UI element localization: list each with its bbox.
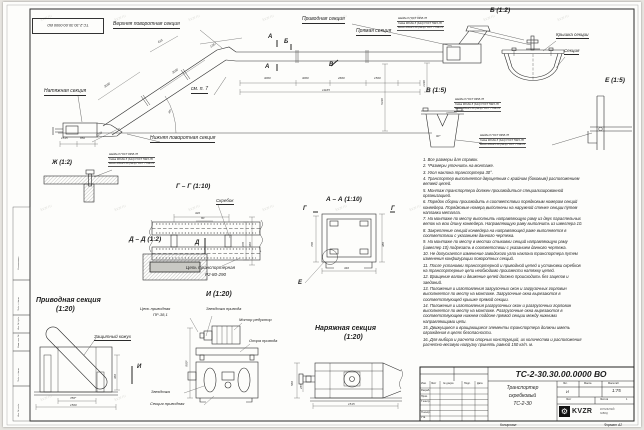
dim-1515-tension: 1515 xyxy=(348,403,355,406)
margin-label-inv-podl: Инв. № подл. xyxy=(18,403,20,417)
view-title-v: В (1:5) xyxy=(426,88,446,95)
dim-1430: 1430 xyxy=(423,80,426,87)
note-item: 14. Положения и изготовления разгрузочны… xyxy=(423,303,583,324)
label-conveyor-chain-1: Цепь транспортерная xyxy=(186,266,235,271)
row-utv: Утв. xyxy=(421,417,426,420)
marker-v: В xyxy=(329,62,333,68)
fastener-callout-b: Шайба 8 ГОСТ 6958-78 Гайка М8-6Н.5 (S13)… xyxy=(397,18,444,32)
note-item: 8. Закрепление секций конвейера на напра… xyxy=(423,228,583,239)
label-protective-cover: Защитный кожух xyxy=(94,335,131,341)
label-tension-section: Натяжная секция xyxy=(44,89,86,96)
view-title-zh: Ж (1:2) xyxy=(52,160,72,166)
view-title-i: И (1:20) xyxy=(206,291,232,298)
kvzr-logo-icon: ⚙ xyxy=(559,406,570,417)
note-item: 7. На монтаже по месту выполнить направл… xyxy=(423,216,583,227)
kvzr-logo-text: KVZR xyxy=(572,408,592,415)
note-item: 1. Все размеры для справок. xyxy=(423,157,583,162)
label-drive-sprocket: Звездочка привода xyxy=(206,307,241,311)
label-upper-turn-section: Верхняя поворотная секция xyxy=(113,22,180,29)
dim-255: 255 xyxy=(300,384,303,389)
col-podp: Подп. xyxy=(464,383,471,386)
detail-b-lines xyxy=(502,36,565,81)
sheet-label: Лист xyxy=(566,399,571,402)
margin-label-inv-dubl: Инв. № дубл. xyxy=(18,317,20,330)
dim-780: 780* xyxy=(70,397,76,400)
note-item: 15. Движущиеся и вращающиеся элементы тр… xyxy=(423,325,583,336)
row-prov: Пров. xyxy=(421,396,428,399)
dim-total-11165: 11165 xyxy=(322,89,330,92)
note-item: 2. *Размеры уточнить на монтаже. xyxy=(423,163,583,168)
label-sprocket: Звездочка xyxy=(151,390,170,394)
dim-340: 340 xyxy=(344,267,349,270)
dim-360: 360 xyxy=(114,374,117,379)
label-drive-support: Опора привода xyxy=(249,339,277,343)
dim-850: 850 xyxy=(80,137,85,140)
label-straight-section: Прямая секция xyxy=(356,29,391,36)
title-block-name-3: ТС-2-30 xyxy=(488,402,557,407)
view-title-drive: Приводная секция xyxy=(36,297,101,304)
row-tkontr: Т.контр. xyxy=(421,401,430,404)
scale-label: Масштаб xyxy=(608,383,619,386)
marker-g-right: Г xyxy=(391,206,395,212)
row-nkontr: Н.контр. xyxy=(421,412,431,415)
note-item: 16. Для выбора и расчета опорных констру… xyxy=(423,337,583,348)
margin-label-podp-data-2: Подп. и дата xyxy=(18,368,20,382)
footer-format: Формат А2 xyxy=(604,424,622,427)
footer-copied: Копировал xyxy=(500,424,516,427)
detail-e-lines xyxy=(588,96,632,150)
i-view-lines xyxy=(184,316,258,405)
label-conveyor-chain-2: Р2-80-290 xyxy=(205,273,226,278)
note-item: 9. На монтаже по месту в местах стыковки… xyxy=(423,239,583,250)
title-block-name-2: скребковый xyxy=(488,394,557,399)
col-list: Лист xyxy=(431,383,436,386)
dim-1515-main: 1515 xyxy=(61,137,68,140)
top-left-stamp: ТС-2-30.30.00.0000 ВО xyxy=(32,18,104,34)
fastener-callout-v1: Шайба 8 ГОСТ 6958-78Гайка М8-6Н.5 (S13) … xyxy=(454,99,501,113)
dim-460: 460 xyxy=(249,242,252,247)
col-izm: Изм. xyxy=(421,383,426,386)
label-drive-section-part: Секция приводная xyxy=(150,402,184,406)
dim-320: 320 xyxy=(195,212,200,215)
label-scraper: Скребок xyxy=(216,199,234,205)
label-drive-chain-1: Цепь приводная xyxy=(140,307,170,311)
marker-g-left: Г xyxy=(303,206,307,212)
label-drive-section: Приводная секция xyxy=(302,17,345,24)
marker-b: Б xyxy=(284,39,288,45)
marker-a-top: А xyxy=(268,34,272,40)
margin-label-soglasovano: Согласовано xyxy=(18,257,20,270)
label-cover: Крышка секции xyxy=(556,33,589,39)
note-item: 12. Вращение валов и движение цепей долж… xyxy=(423,274,583,285)
dim-800: 800* xyxy=(186,360,189,366)
note-item: 13. Положения и изготовления загрузочных… xyxy=(423,286,583,302)
dim-5430: 5430 xyxy=(381,98,384,105)
detail-zh-lines xyxy=(44,170,118,202)
logo-subtext-2: ЗАВОД xyxy=(600,413,608,415)
lit-value: И xyxy=(566,390,569,394)
sheets-value: 1 xyxy=(626,399,627,402)
dim-2660: 2660 xyxy=(338,77,345,80)
technical-notes: 1. Все размеры для справок.2. *Размеры у… xyxy=(423,157,583,348)
main-view-dims xyxy=(60,36,430,147)
callout-line-bolt: Болт М8х25.58 (S13) ГОСТ 7796-70 xyxy=(397,27,444,31)
view-title-aa: А – А (1:10) xyxy=(326,197,362,204)
note-item: 5. Монтаж транспортера должен производит… xyxy=(423,188,583,199)
marker-e: Е xyxy=(298,280,302,286)
view-title-tension: Наряжная секция xyxy=(315,325,376,332)
dim-3000-run2: 3000 xyxy=(302,77,309,80)
row-razrab: Разраб. xyxy=(421,390,430,393)
label-motor-reducer: Мотор редуктор xyxy=(239,318,272,322)
view-scale-tension: (1:20) xyxy=(344,334,363,341)
scale-value: 1:75 xyxy=(612,389,621,394)
dim-700: 700 xyxy=(311,242,314,247)
marker-d: Д xyxy=(195,240,199,246)
detail-aa-lines xyxy=(305,212,395,283)
note-item: 4. Транспортер выполняется двухцепным с … xyxy=(423,176,583,187)
note-item: 3. Угол наклона транспортера 30°. xyxy=(423,170,583,175)
view-title-b: Б (1:2) xyxy=(490,8,510,15)
title-block-doc-number: ТС-2-30.30.00.0000 ВО xyxy=(488,370,634,379)
mass-label: Масса xyxy=(584,383,591,386)
view-title-dd: Д – Д (1:2) xyxy=(129,237,161,244)
marker-a-bottom: А xyxy=(265,64,269,70)
label-see-note: см. п. 7 xyxy=(191,87,208,94)
label-section: Секция xyxy=(564,49,579,55)
title-block-name-1: Транспортер xyxy=(488,386,557,391)
dim-1500: 1500 xyxy=(374,77,381,80)
drawing-sheet-page: kvzr.rukvzr.rukvzr.rukvzr.rukvzr.rukvzr.… xyxy=(0,0,644,430)
dim-90deg: 90° xyxy=(436,135,441,138)
lit-label: Лит. xyxy=(563,383,568,386)
marker-i: И xyxy=(137,364,141,370)
fastener-callout-v2: Шайба 8 ГОСТ 6958-78Гайка М8-6Н.5 (S13) … xyxy=(479,135,526,149)
label-lower-turn-section: Нижняя поворотная секция xyxy=(150,136,215,143)
dim-3000-run1: 3000 xyxy=(264,77,271,80)
margin-label-podp-data-1: Подп. и дата xyxy=(18,297,20,311)
dim-380: 380 xyxy=(382,242,385,247)
view-title-gg: Г – Г (1:10) xyxy=(176,184,210,191)
view-title-e: Е (1:5) xyxy=(605,78,625,85)
note-item: 11. После установки транспортерной и при… xyxy=(423,263,583,274)
note-item: 6. Порядок сборки производить в соответс… xyxy=(423,199,583,215)
dim-370: 370 xyxy=(242,242,245,247)
col-doc: № докум. xyxy=(443,383,454,386)
dim-80: 80 xyxy=(201,217,204,220)
logo-subtext-1: КОТЕЛЬНЫЙ xyxy=(600,409,614,411)
dim-1500-drive: 1500 xyxy=(70,404,77,407)
col-data: Дата xyxy=(477,383,483,386)
fastener-callout-zh: Шайба 8 ГОСТ 6958-78Гайка М8-6Н.5 (S13) … xyxy=(108,154,155,168)
dim-560: 560 xyxy=(291,381,294,386)
margin-label-vzam-inv: Взам. инв. № xyxy=(18,334,20,348)
sheets-label: Листов xyxy=(600,399,608,402)
view-scale-drive: (1:20) xyxy=(56,306,75,313)
note-item: 10. Не допускается изменение заводского … xyxy=(423,251,583,262)
label-drive-chain-2: ПР-38,1 xyxy=(153,313,168,317)
